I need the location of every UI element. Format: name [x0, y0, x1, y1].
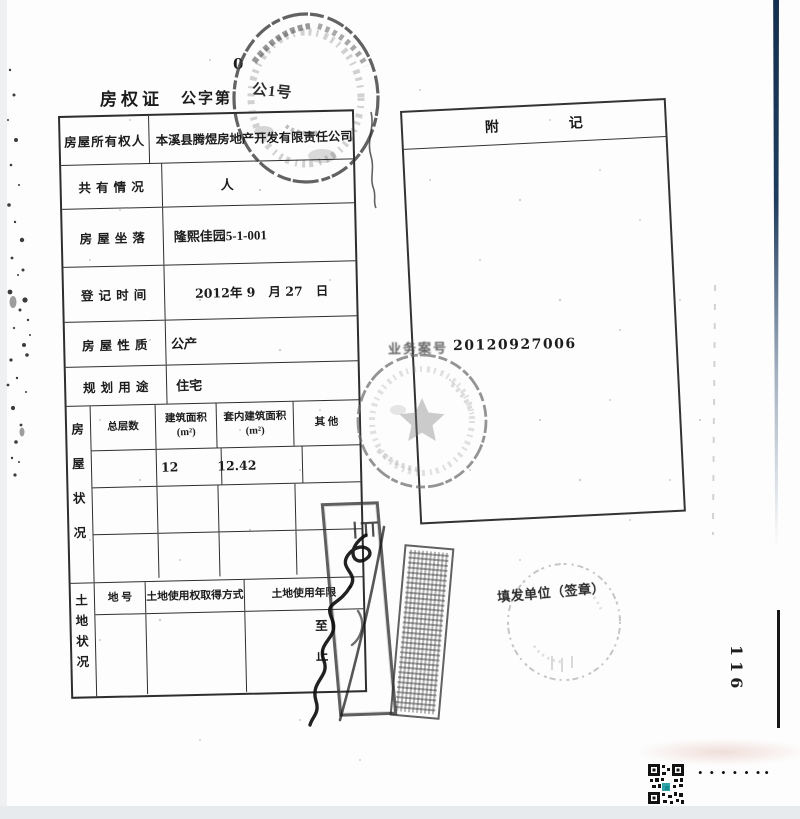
field-value-registration-date: 2012年 9 月 27 日 [164, 261, 356, 319]
housing-total-floors-value [92, 450, 158, 487]
dots-end: • [764, 765, 769, 780]
notes-title-right: 记 [568, 112, 583, 133]
field-label-owner: 房屋所有权人 [60, 116, 150, 165]
housing-inner-area-value: 2.42 [222, 447, 304, 485]
housing-header-row: 总层数 建筑面积 (m²) 套内建筑面积 (m²) 其 他 [91, 400, 360, 451]
page-number: 116 [727, 645, 746, 693]
field-value-owner: 本溪县腾煜房地产开发有限责任公司 [149, 111, 353, 163]
row-location: 房 屋 坐 落 隆熙佳园5-1-001 [62, 203, 355, 268]
row-owner: 房屋所有权人 本溪县腾煜房地产开发有限责任公司 [60, 111, 353, 166]
qr-teal-mark [662, 783, 670, 791]
page-edge-line [777, 610, 780, 728]
qr-code [646, 762, 686, 806]
empty-cell [159, 532, 221, 577]
empty-cell [219, 531, 297, 577]
empty-cell [94, 534, 160, 579]
certificate-title: 房权证 [100, 85, 163, 110]
field-label-location: 房 屋 坐 落 [62, 208, 164, 267]
land-acquisition-method-value [146, 612, 247, 694]
fold-crease [712, 285, 716, 535]
watermark-dots: ••••••• [698, 765, 769, 781]
empty-cell [157, 485, 219, 532]
official-round-seal [352, 350, 494, 494]
notes-title-left: 附 [484, 116, 499, 137]
empty-cell [218, 484, 296, 532]
field-label-registration-date: 登 记 时 间 [63, 266, 165, 322]
field-label-co-ownership: 共 有 情 况 [61, 164, 163, 209]
field-value-location: 隆熙佳园5-1-001 [163, 203, 355, 264]
row-registration-date: 登 记 时 间 2012年 9 月 27 日 [63, 261, 356, 323]
certificate-series-label: 公字第 [181, 87, 232, 108]
crease-mark [364, 110, 380, 210]
issuer-seal [500, 556, 632, 688]
housing-col-inner-area: 套内建筑面积 (m²) [217, 402, 295, 448]
dots-main: •••••• [698, 765, 767, 780]
field-value-planned-use: 住宅 [167, 361, 359, 403]
field-value-property-nature: 公产 [164, 316, 359, 364]
field-label-planned-use: 规 划 用 途 [66, 366, 168, 406]
row-planned-use: 规 划 用 途 住宅 [66, 361, 359, 407]
scan-bottom-strip [0, 806, 800, 819]
binding-shadow [770, 0, 779, 573]
housing-col-total-floors: 总层数 [91, 405, 157, 450]
housing-col-floor-area: 建筑面积 (m²) [156, 403, 218, 448]
land-col-parcel-number: 地 号 [95, 582, 147, 614]
field-value-co-ownership: 人 [162, 159, 354, 206]
scan-left-strip [0, 0, 7, 819]
row-co-ownership: 共 有 情 况 人 [61, 159, 354, 210]
property-certificate-page: 0 房权证 公字第 公1号 房屋所有权人 本溪县腾煜房地产开发有限责任公司 共 … [0, 0, 800, 819]
signature-scribble [300, 515, 404, 730]
row-property-nature: 房 屋 性 质 公产 [65, 316, 358, 368]
housing-floor-area-value: 12 1 [157, 448, 223, 485]
housing-value-row: 12 1 2.42 [92, 445, 361, 488]
housing-col-other: 其 他 [294, 400, 360, 445]
empty-cell [92, 487, 158, 534]
floor-area-text: 12 [161, 459, 179, 476]
notes-header: 附 记 [402, 100, 665, 150]
field-label-property-nature: 房 屋 性 质 [65, 321, 167, 367]
land-section-side-label: 土地状况 [71, 583, 98, 697]
land-parcel-number-value [95, 614, 148, 695]
land-col-acquisition-method: 土地使用权取得方式 [146, 580, 246, 613]
